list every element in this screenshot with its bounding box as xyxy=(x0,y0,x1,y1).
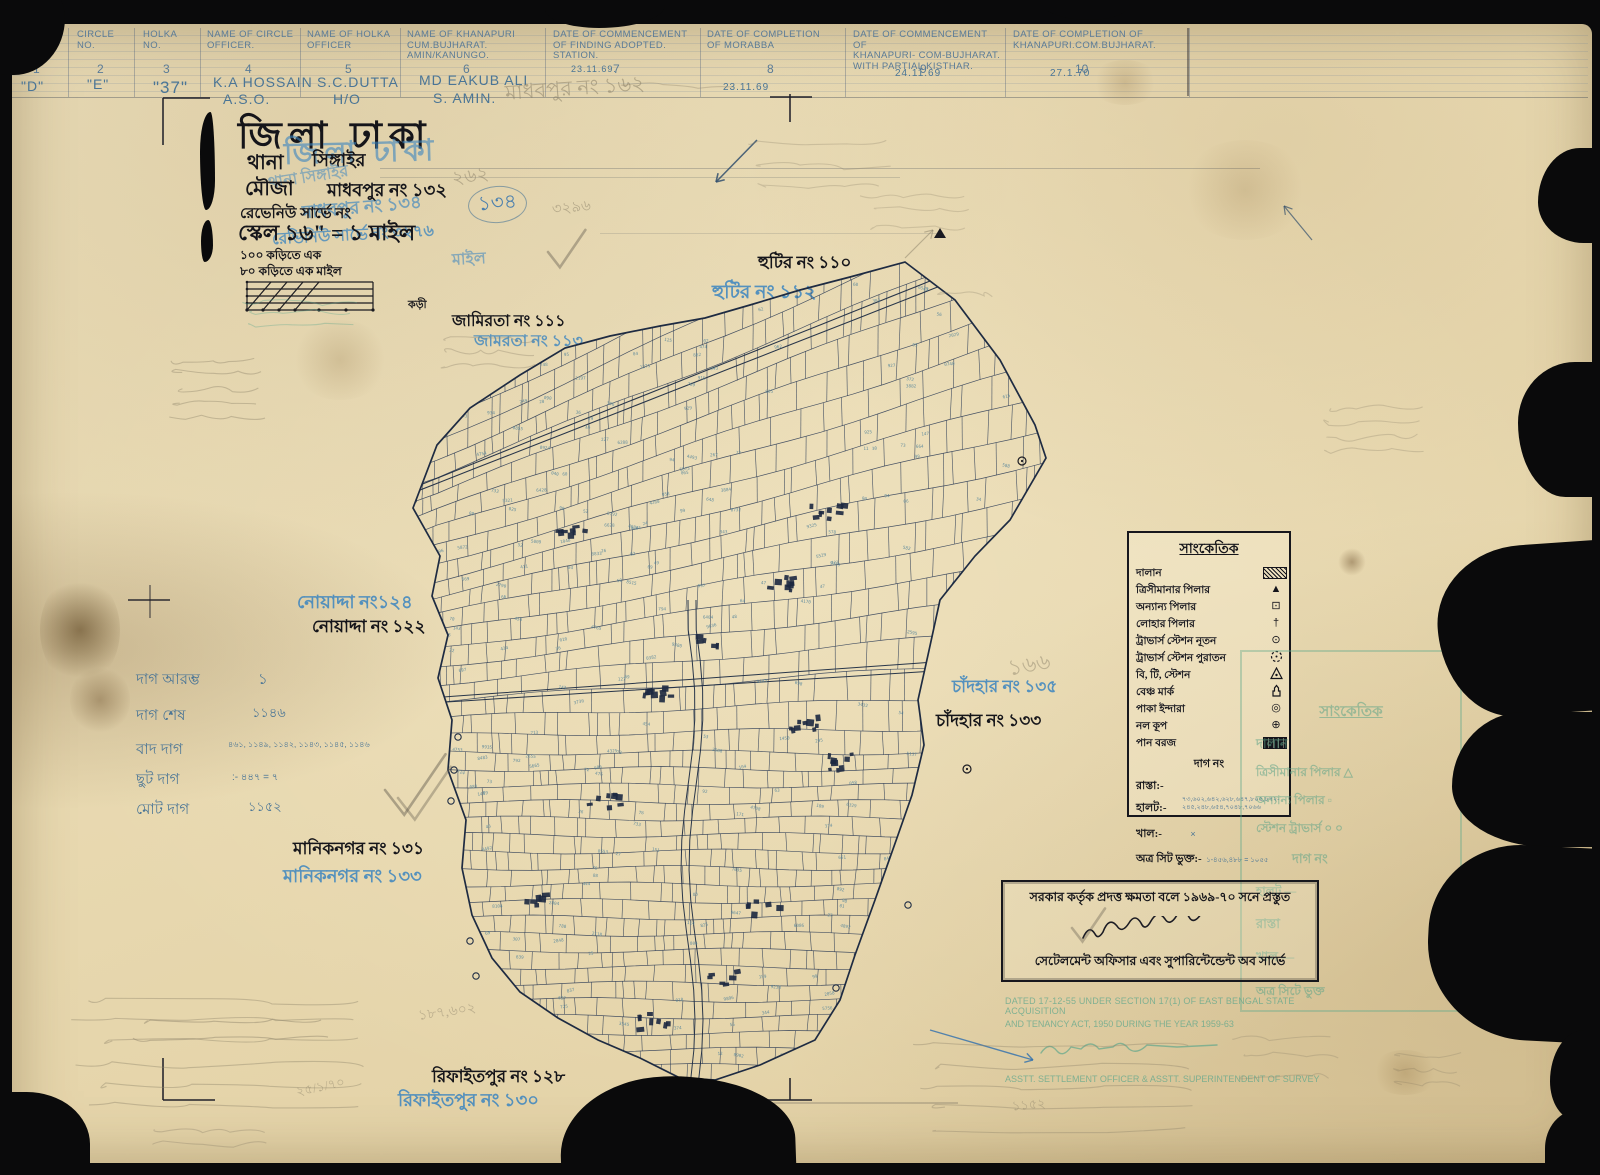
scanned-mouza-map-sheet: BLOCK NO. CIRCLE NO. HOLKA NO. NAME OF C… xyxy=(0,0,1600,1175)
annotation-overlay xyxy=(0,0,1600,1175)
